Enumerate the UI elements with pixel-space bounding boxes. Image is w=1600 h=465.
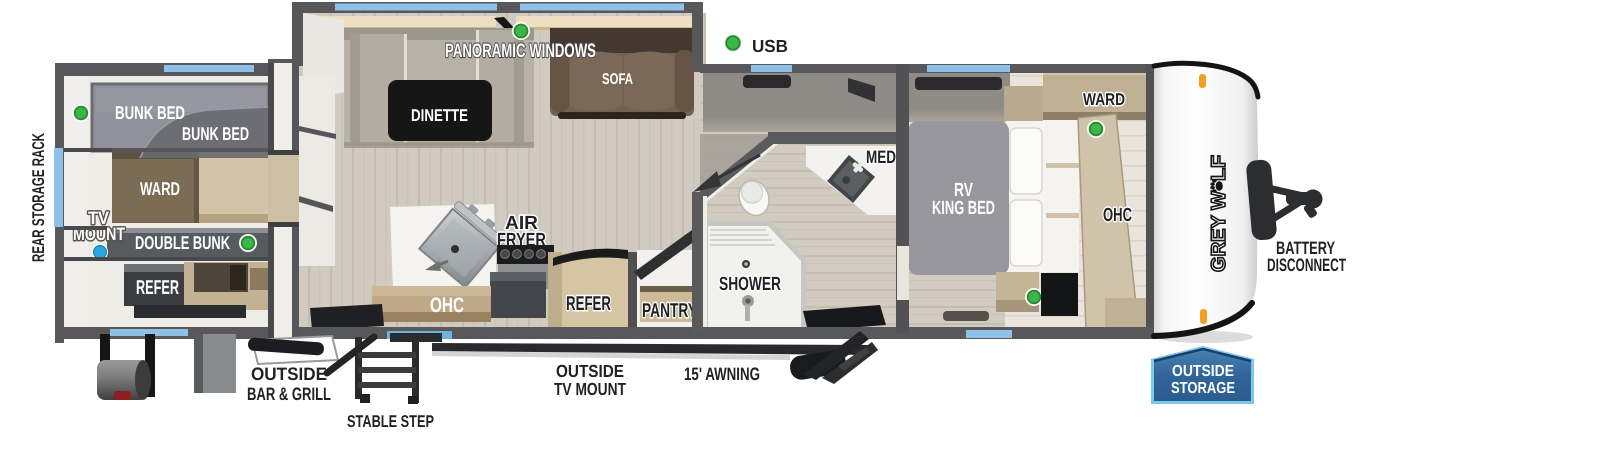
svg-text:OHC: OHC [430, 294, 464, 317]
svg-text:OUTSIDE: OUTSIDE [251, 364, 327, 384]
svg-text:WARD: WARD [140, 178, 180, 199]
svg-text:MED: MED [866, 147, 896, 167]
svg-text:OHC: OHC [1103, 205, 1132, 226]
svg-text:STABLE STEP: STABLE STEP [347, 412, 434, 431]
svg-text:LF: LF [1208, 155, 1230, 181]
svg-text:REFER: REFER [136, 277, 179, 299]
svg-text:SOFA: SOFA [602, 71, 633, 88]
svg-text:15' AWNING: 15' AWNING [684, 364, 760, 384]
svg-text:BAR & GRILL: BAR & GRILL [247, 384, 331, 404]
svg-text:WARD: WARD [1083, 90, 1125, 109]
svg-text:REFER: REFER [566, 293, 611, 315]
svg-text:OUTSIDE: OUTSIDE [556, 361, 624, 381]
svg-text:BUNK BED: BUNK BED [182, 123, 249, 144]
svg-text:SHOWER: SHOWER [719, 274, 781, 295]
svg-text:DOUBLE BUNK: DOUBLE BUNK [135, 232, 230, 253]
svg-text:BUNK BED: BUNK BED [115, 102, 185, 123]
svg-text:GREY W: GREY W [1208, 191, 1230, 272]
svg-text:DINETTE: DINETTE [411, 106, 468, 125]
svg-text:DISCONNECT: DISCONNECT [1267, 255, 1346, 275]
svg-text:OUTSIDE: OUTSIDE [1172, 363, 1234, 380]
svg-text:PANTRY: PANTRY [642, 300, 697, 322]
svg-text:PANORAMIC WINDOWS: PANORAMIC WINDOWS [445, 40, 596, 62]
svg-text:REAR STORAGE RACK: REAR STORAGE RACK [29, 133, 48, 262]
svg-text:TV MOUNT: TV MOUNT [554, 379, 626, 399]
svg-text:STORAGE: STORAGE [1171, 380, 1235, 397]
svg-text:KING BED: KING BED [932, 198, 995, 219]
svg-text:USB: USB [752, 36, 788, 56]
